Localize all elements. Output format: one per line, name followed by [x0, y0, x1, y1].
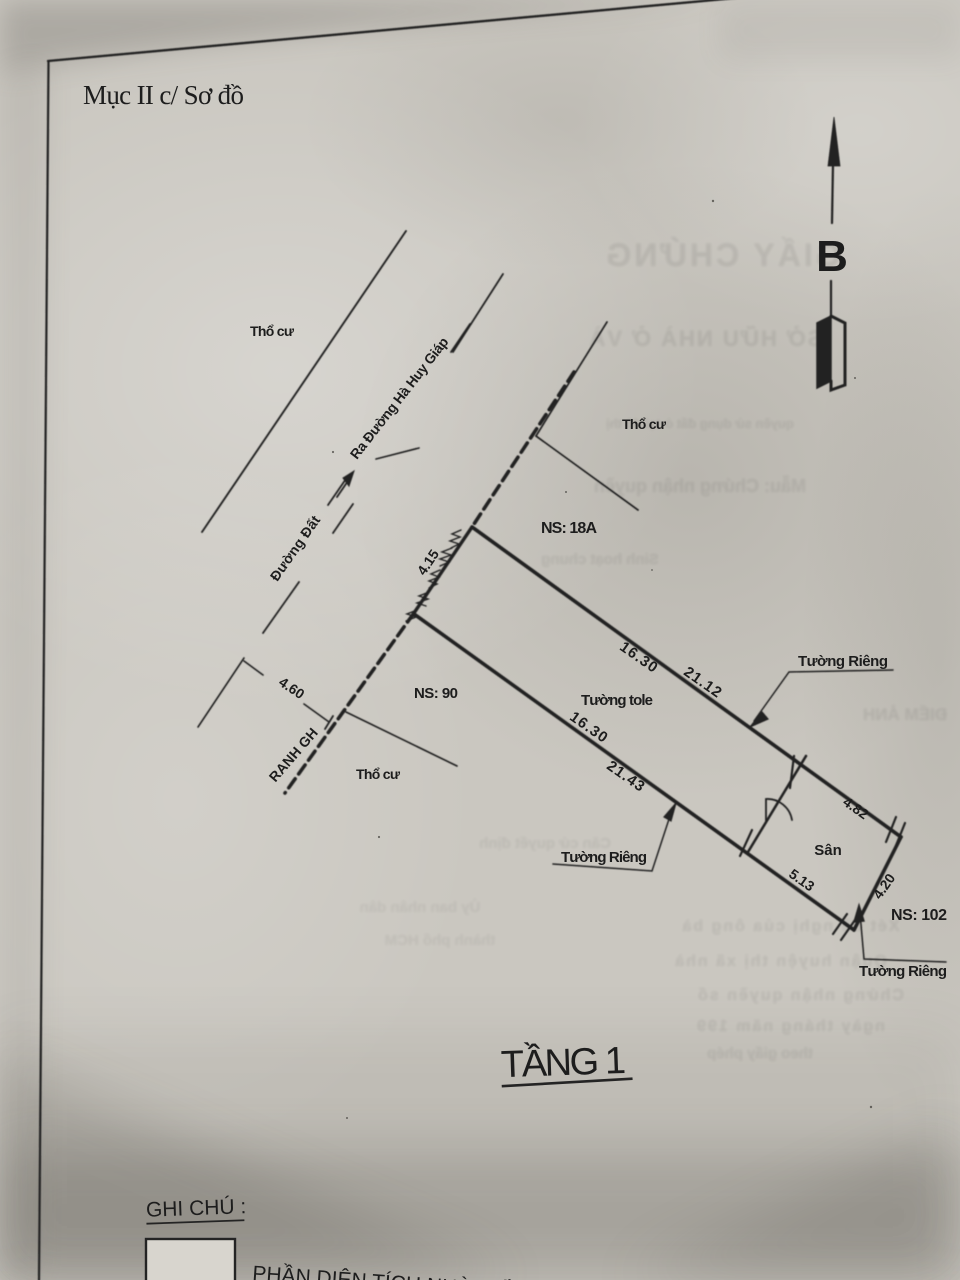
svg-text:NS: 18A: NS: 18A	[541, 520, 597, 537]
svg-text:SỞ HỮU NHÀ Ở VÀ: SỞ HỮU NHÀ Ở VÀ	[588, 326, 823, 351]
svg-text:Thổ cư: Thổ cư	[622, 416, 667, 432]
svg-text:Mục II c/ Sơ đồ: Mục II c/ Sơ đồ	[83, 80, 244, 110]
svg-text:Xét đề nghị của ông bà: Xét đề nghị của ông bà	[680, 918, 899, 935]
svg-text:Sân: Sân	[814, 842, 842, 859]
svg-text:Quận huyện thị xã nhà: Quận huyện thị xã nhà	[673, 953, 887, 970]
svg-text:GHI CHÚ :: GHI CHÚ :	[146, 1195, 247, 1221]
svg-text:GIẤY CHỨNG: GIẤY CHỨNG	[603, 237, 840, 273]
svg-text:Tường Riêng: Tường Riêng	[561, 849, 647, 866]
svg-text:NS: 90: NS: 90	[414, 685, 458, 702]
svg-text:theo giấy phép: theo giấy phép	[707, 1045, 813, 1062]
svg-text:NS: 102: NS: 102	[891, 907, 947, 924]
svg-text:Thổ cư: Thổ cư	[356, 766, 401, 782]
svg-text:Chứng nhận quyền số: Chứng nhận quyền số	[696, 987, 904, 1004]
svg-text:Ủy ban nhân dân: Ủy ban nhân dân	[360, 898, 481, 916]
svg-text:Tường Riêng: Tường Riêng	[798, 653, 888, 670]
svg-text:Sinh hoạt chung: Sinh hoạt chung	[541, 551, 659, 568]
svg-text:ngày tháng năm 199: ngày tháng năm 199	[695, 1018, 885, 1035]
svg-text:B: B	[816, 232, 848, 281]
svg-text:Mẫu: Chứng nhận quyền: Mẫu: Chứng nhận quyền	[594, 475, 806, 496]
svg-text:ĐIỂM ẢNH: ĐIỂM ẢNH	[863, 705, 947, 724]
svg-text:Tường Riêng: Tường Riêng	[859, 963, 947, 980]
svg-text:Thổ cư: Thổ cư	[250, 323, 295, 339]
svg-text:Tường tole: Tường tole	[581, 692, 653, 709]
svg-text:thành phố HCM: thành phố HCM	[385, 932, 496, 949]
